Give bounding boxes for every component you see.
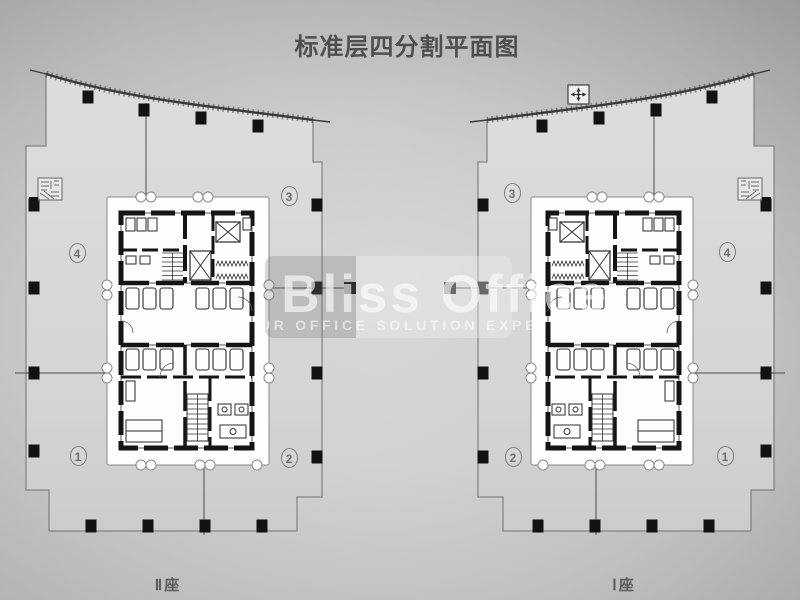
tower-2-label: Ⅱ座	[155, 574, 181, 595]
watermark-brand: Bliss Office	[281, 264, 609, 325]
zone-marker-2-tower1: 2	[505, 447, 522, 467]
compass-icon	[568, 85, 589, 104]
tower-1-label: Ⅰ座	[612, 574, 635, 595]
zone-marker-3-tower1: 3	[504, 183, 521, 203]
page-title: 标准层四分割平面图	[295, 27, 520, 62]
zone-marker-4-tower1: 4	[719, 242, 736, 262]
zone-marker-3-tower2: 3	[281, 186, 298, 206]
zone-marker-2-tower2: 2	[281, 448, 298, 468]
floor-plan-image: Bliss Office UR OFFICE SOLUTION EXPE 标准层…	[0, 0, 800, 600]
zone-marker-1-tower1: 1	[717, 446, 734, 466]
zone-marker-1-tower2: 1	[70, 446, 87, 466]
zone-marker-4-tower2: 4	[69, 243, 86, 263]
watermark-tagline: UR OFFICE SOLUTION EXPE	[260, 317, 538, 333]
